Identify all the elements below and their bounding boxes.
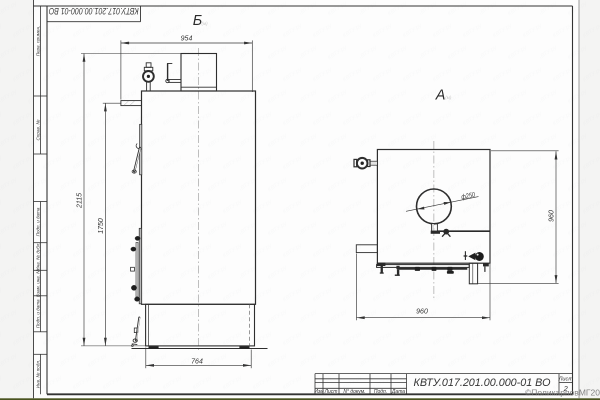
- svg-text:(м): (м): [445, 95, 452, 100]
- svg-text:Дата: Дата: [391, 389, 405, 395]
- svg-text:А: А: [435, 88, 446, 104]
- svg-text:©ПоликарповМГ2021: ©ПоликарповМГ2021: [525, 388, 600, 398]
- svg-text:1750: 1750: [98, 218, 105, 234]
- svg-text:Справ. №: Справ. №: [35, 120, 40, 141]
- svg-text:(м): (м): [202, 21, 209, 26]
- svg-text:954: 954: [181, 36, 193, 43]
- svg-text:N° докум.: N° докум.: [343, 389, 365, 395]
- svg-text:Инв. № дубл.: Инв. № дубл.: [35, 242, 40, 270]
- svg-text:Подп. и дата: Подп. и дата: [35, 299, 40, 328]
- svg-text:Изм: Изм: [314, 389, 324, 395]
- svg-text:Инв. № подл.: Инв. № подл.: [35, 360, 40, 389]
- svg-text:Перв. примен.: Перв. примен.: [35, 26, 40, 57]
- svg-text:Лист: Лист: [558, 377, 574, 383]
- svg-text:2115: 2115: [77, 193, 84, 209]
- svg-text:Подп.: Подп.: [374, 389, 387, 395]
- svg-text:Взам. инв. №: Взам. инв. №: [35, 269, 40, 297]
- svg-text:Подп. и дата: Подп. и дата: [35, 207, 40, 236]
- svg-text:Лист: Лист: [324, 389, 338, 395]
- svg-text:764: 764: [191, 358, 203, 365]
- svg-text:КВТУ.017.201.00.000-01 ВО: КВТУ.017.201.00.000-01 ВО: [48, 5, 138, 16]
- svg-text:960: 960: [549, 210, 556, 222]
- svg-text:960: 960: [416, 309, 428, 316]
